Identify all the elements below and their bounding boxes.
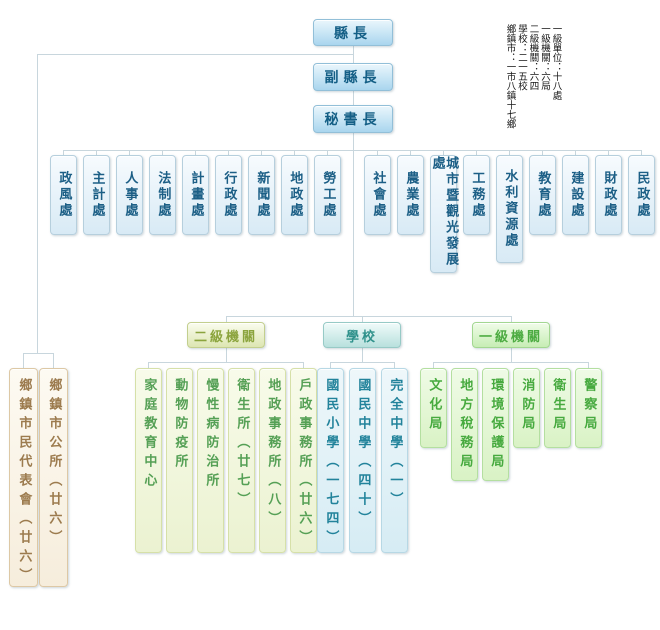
bureau-node: 文化局 — [420, 368, 447, 448]
legend-line: 鄉鎮市：一市八鎮十七鄉 — [504, 24, 516, 164]
connector-line — [353, 91, 354, 105]
legend-line: 二級機關：六四 — [527, 24, 539, 164]
header-schools: 學校 — [323, 322, 401, 348]
dept-node: 主計處 — [83, 155, 110, 235]
node-township-office: 鄉鎮市公所（廿六） — [39, 368, 68, 587]
node-county-magistrate: 縣長 — [313, 19, 393, 46]
org-chart-canvas: 縣長 副縣長 秘書長 一級單位：十八處 一級機關：六局 二級機關：六四 學校：二… — [0, 0, 660, 630]
connector-line — [23, 353, 24, 368]
dept-node: 人事處 — [116, 155, 143, 235]
dept-node: 新聞處 — [248, 155, 275, 235]
bureau-node: 地方稅務局 — [451, 368, 478, 481]
node-deputy-magistrate: 副縣長 — [313, 63, 393, 91]
connector-line — [330, 362, 395, 363]
secondary-agencies-row: 家庭教育中心 動物防疫所 慢性病防治所 衛生所（廿七） 地政事務所（八） 戶政事… — [135, 368, 317, 553]
connector-line — [226, 348, 227, 362]
connector-line — [23, 353, 54, 354]
school-node: 國民中學（四十） — [349, 368, 376, 553]
connector-line — [362, 348, 363, 362]
dept-node: 水利資源處 — [496, 155, 523, 263]
school-node: 國民小學（一七四） — [317, 368, 344, 553]
dept-node: 政風處 — [50, 155, 77, 235]
dept-node: 工務處 — [463, 155, 490, 235]
dept-node: 城市暨觀光發展處 — [430, 155, 457, 273]
agency-node: 地政事務所（八） — [259, 368, 286, 553]
agency-node: 慢性病防治所 — [197, 368, 224, 553]
dept-node: 社會處 — [364, 155, 391, 235]
header-primary-agencies: 一級機關 — [472, 322, 550, 348]
bureau-node: 衛生局 — [544, 368, 571, 448]
connector-line — [148, 362, 304, 363]
primary-agencies-row: 文化局 地方稅務局 環境保護局 消防局 衛生局 警察局 — [420, 368, 602, 481]
dept-node: 勞工處 — [314, 155, 341, 235]
schools-row: 國民小學（一七四） 國民中學（四十） 完全中學（一） — [317, 368, 408, 553]
dept-node: 財政處 — [595, 155, 622, 235]
dept-node: 民政處 — [628, 155, 655, 235]
dept-node: 農業處 — [397, 155, 424, 235]
legend-line: 學校：二一五校 — [516, 24, 528, 164]
department-row: 政風處 主計處 人事處 法制處 計畫處 行政處 新聞處 地政處 勞工處 社會處 … — [50, 150, 655, 273]
agency-node: 戶政事務所（廿六） — [290, 368, 317, 553]
connector-line — [37, 54, 354, 55]
bureau-node: 環境保護局 — [482, 368, 509, 481]
legend-line: 一級機關：六局 — [539, 24, 551, 164]
node-label: 秘書長 — [325, 109, 382, 129]
bureau-node: 消防局 — [513, 368, 540, 448]
header-secondary-agencies: 二級機關 — [187, 322, 265, 348]
dept-node: 地政處 — [281, 155, 308, 235]
dept-node: 計畫處 — [182, 155, 209, 235]
dept-node: 建設處 — [562, 155, 589, 235]
dept-node: 行政處 — [215, 155, 242, 235]
connector-line — [511, 348, 512, 362]
school-node: 完全中學（一） — [381, 368, 408, 553]
connector-line — [53, 353, 54, 368]
summary-legend: 一級單位：十八處 一級機關：六局 二級機關：六四 學校：二一五校 鄉鎮市：一市八… — [504, 24, 562, 164]
dept-node: 教育處 — [529, 155, 556, 235]
bureau-node: 警察局 — [575, 368, 602, 448]
connector-line — [353, 46, 354, 63]
agency-node: 動物防疫所 — [166, 368, 193, 553]
node-label: 縣長 — [334, 23, 372, 43]
agency-node: 衛生所（廿七） — [228, 368, 255, 553]
node-township-council: 鄉鎮市民代表會（廿六） — [9, 368, 38, 587]
connector-line — [226, 316, 512, 317]
agency-node: 家庭教育中心 — [135, 368, 162, 553]
dept-node: 法制處 — [149, 155, 176, 235]
connector-line — [37, 54, 38, 353]
node-secretary-general: 秘書長 — [313, 105, 393, 133]
node-label: 副縣長 — [325, 67, 382, 87]
legend-line: 一級單位：十八處 — [550, 24, 562, 164]
connector-line — [433, 362, 589, 363]
